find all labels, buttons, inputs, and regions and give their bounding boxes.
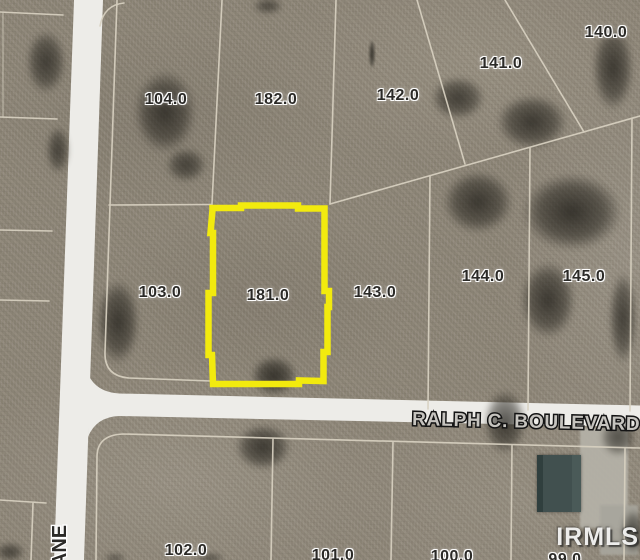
irmls-watermark: IRMLS xyxy=(556,523,639,552)
parcel-label-140.0: 140.0 xyxy=(585,24,628,42)
parcel-label-182.0: 182.0 xyxy=(255,91,298,109)
parcel-boundaries xyxy=(0,0,640,560)
parcel-label-101.0: 101.0 xyxy=(312,547,355,560)
parcel-label-99.0: 99.0 xyxy=(548,551,581,560)
parcel-label-103.0: 103.0 xyxy=(139,284,182,302)
overlay-layer: RALPH C. BOULEVARD ANE xyxy=(0,0,640,560)
parcel-label-141.0: 141.0 xyxy=(480,55,523,73)
aerial-parcel-map: RALPH C. BOULEVARD ANE 104.0182.0142.014… xyxy=(0,0,640,560)
parcel-label-143.0: 143.0 xyxy=(354,284,397,302)
road-name-label: RALPH C. BOULEVARD xyxy=(412,409,640,435)
parcel-label-145.0: 145.0 xyxy=(563,268,606,286)
parcel-label-181.0: 181.0 xyxy=(247,287,290,305)
parcel-label-100.0: 100.0 xyxy=(431,548,474,560)
street-name-label: ANE xyxy=(49,525,71,560)
parcel-label-102.0: 102.0 xyxy=(165,542,208,560)
parcel-label-142.0: 142.0 xyxy=(377,87,420,105)
parcel-label-144.0: 144.0 xyxy=(462,268,505,286)
parcel-label-104.0: 104.0 xyxy=(145,91,188,109)
